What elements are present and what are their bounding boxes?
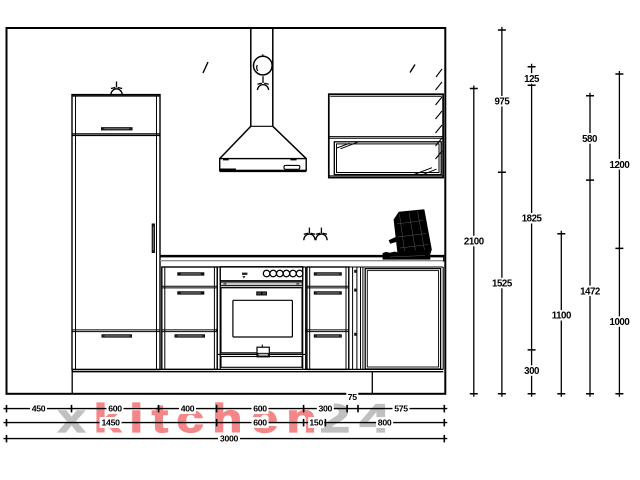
svg-text:1100: 1100 [552, 311, 571, 322]
svg-text:75: 75 [348, 392, 358, 402]
svg-text:1825: 1825 [522, 214, 543, 225]
svg-text:300: 300 [318, 404, 332, 414]
svg-text:600: 600 [253, 418, 267, 428]
svg-text:450: 450 [32, 404, 46, 414]
svg-text:1000: 1000 [610, 317, 630, 328]
svg-text:150: 150 [309, 418, 323, 428]
svg-text:125: 125 [524, 74, 540, 85]
svg-text:800: 800 [378, 418, 392, 428]
svg-text:1200: 1200 [610, 160, 630, 171]
svg-text:600: 600 [253, 404, 267, 414]
svg-text:580: 580 [582, 134, 597, 145]
svg-text:1525: 1525 [492, 279, 513, 290]
svg-text:300: 300 [524, 366, 539, 377]
svg-text:575: 575 [394, 404, 408, 414]
svg-text:2100: 2100 [464, 237, 484, 248]
svg-text:600: 600 [108, 404, 122, 414]
svg-text:1450: 1450 [102, 418, 121, 428]
svg-text:975: 975 [494, 97, 510, 108]
svg-text:400: 400 [181, 404, 195, 414]
svg-text:1472: 1472 [580, 286, 600, 297]
svg-text:3000: 3000 [220, 434, 239, 444]
